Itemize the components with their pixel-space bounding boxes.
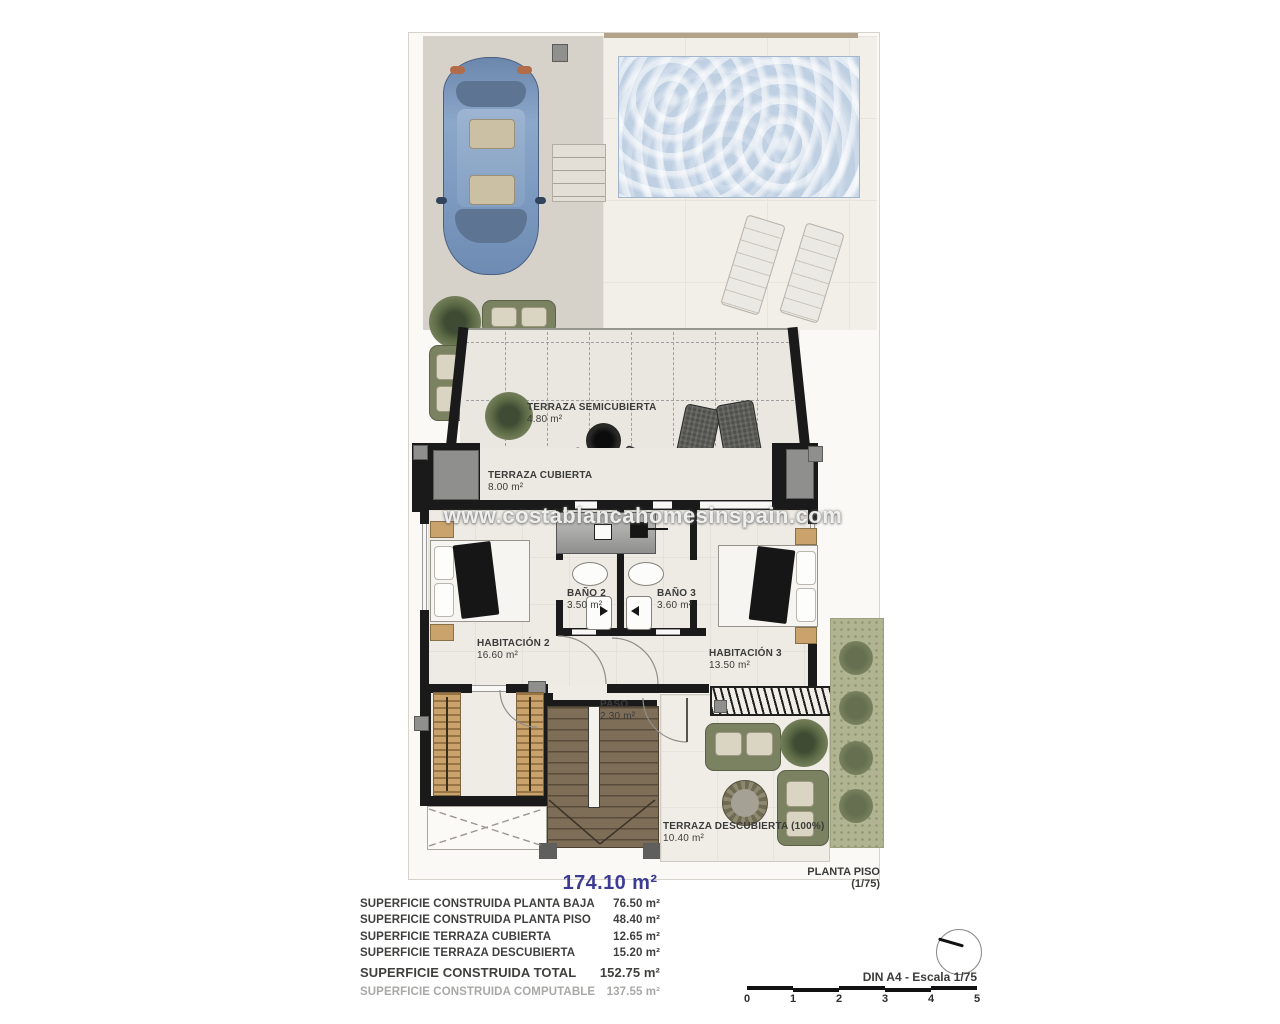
north-compass-icon (936, 929, 982, 975)
car-taillight-left (450, 66, 465, 74)
car-mirror-right (535, 197, 546, 204)
pergola-line (466, 342, 794, 343)
wall (420, 796, 553, 806)
car-sunroof-rear (469, 175, 515, 205)
scale-tick: 5 (974, 993, 980, 1005)
car-rear-window (456, 81, 526, 107)
summary-row: SUPERFICIE TERRAZA DESCUBIERTA15.20 m² (360, 947, 660, 963)
room-label-bano2: BAÑO 2 3.50 m² (567, 588, 606, 612)
car-mirror-left (436, 197, 447, 204)
staircase (547, 706, 659, 848)
scale-text: DIN A4 - Escala 1/75 (859, 970, 977, 984)
wall (607, 684, 709, 693)
corner-post (414, 716, 429, 731)
scale-tick: 2 (836, 993, 842, 1005)
room-label-bano3: BAÑO 3 3.60 m² (657, 588, 696, 612)
sink (628, 562, 664, 586)
plot-top-edge (604, 33, 858, 38)
summary-computable-row: SUPERFICIE CONSTRUIDA COMPUTABLE137.55 m… (360, 986, 660, 1002)
bed-habitacion2 (430, 540, 530, 622)
scale-tick: 4 (928, 993, 934, 1005)
surface-summary-table: SUPERFICIE CONSTRUIDA PLANTA BAJA76.50 m… (360, 898, 660, 1002)
door-gap (656, 629, 680, 635)
room-label-paso: PASO 2.30 m² (600, 699, 635, 723)
corner-post (808, 446, 823, 462)
garden-strip (830, 618, 884, 848)
watermark: www.costablancahomesinspain.com (408, 503, 878, 529)
fence-post (552, 44, 568, 62)
wall (420, 688, 431, 800)
scale-tick: 3 (882, 993, 888, 1005)
summary-total-row: SUPERFICIE CONSTRUIDA TOTAL152.75 m² (360, 965, 660, 984)
plan-name-label: PLANTA PISO (1/75) (780, 866, 880, 890)
room-label-terraza-semicubierta: TERRAZA SEMICUBIERTA 4.80 m² (527, 402, 657, 426)
window-left (422, 524, 427, 610)
exterior-stairs (552, 144, 606, 202)
bed-habitacion3 (718, 545, 818, 627)
room-label-terraza-descubierta: TERRAZA DESCUBIERTA (100%) 10.40 m² (663, 821, 825, 845)
rattan-table (722, 780, 768, 826)
corner-post (413, 445, 428, 460)
corner-post (539, 843, 557, 859)
swimming-pool (618, 56, 860, 198)
terrace-plant (485, 392, 533, 440)
nightstand (430, 624, 454, 641)
void-shaft (427, 806, 547, 850)
corner-post (643, 843, 661, 859)
car-sunroof-front (469, 119, 515, 149)
corner-post (714, 700, 727, 713)
stair-slot (588, 706, 600, 808)
summary-row: SUPERFICIE CONSTRUIDA PLANTA PISO48.40 m… (360, 914, 660, 930)
patio-sofa (705, 723, 781, 771)
nightstand (795, 528, 817, 545)
sink (572, 562, 608, 586)
wardrobe (433, 692, 461, 796)
louver-screen (710, 686, 832, 716)
room-label-terraza-cubierta: TERRAZA CUBIERTA 8.00 m² (488, 470, 592, 494)
room-label-habitacion2: HABITACIÓN 2 16.60 m² (477, 638, 550, 662)
summary-row: SUPERFICIE TERRAZA CUBIERTA12.65 m² (360, 931, 660, 947)
nightstand (795, 627, 817, 644)
scale-bar: 0 1 2 3 4 5 (747, 985, 977, 1001)
car-top-view (443, 57, 539, 275)
wall (420, 610, 429, 686)
room-label-habitacion3: HABITACIÓN 3 13.50 m² (709, 648, 782, 672)
wardrobe (516, 692, 544, 796)
scale-tick: 1 (790, 993, 796, 1005)
scale-tick: 0 (744, 993, 750, 1005)
car-windshield (455, 209, 527, 243)
toilet-arrow (626, 606, 639, 616)
window (472, 685, 506, 692)
pillar-left (433, 450, 479, 500)
total-area-value: 174.10 m² (500, 872, 720, 895)
floor-plan-page: TERRAZA SEMICUBIERTA 4.80 m² TERRAZA CUB… (0, 0, 1280, 1024)
summary-row: SUPERFICIE CONSTRUIDA PLANTA BAJA76.50 m… (360, 898, 660, 914)
patio-plant (780, 719, 828, 767)
car-taillight-right (517, 66, 532, 74)
terrace-edge-line (462, 328, 794, 330)
